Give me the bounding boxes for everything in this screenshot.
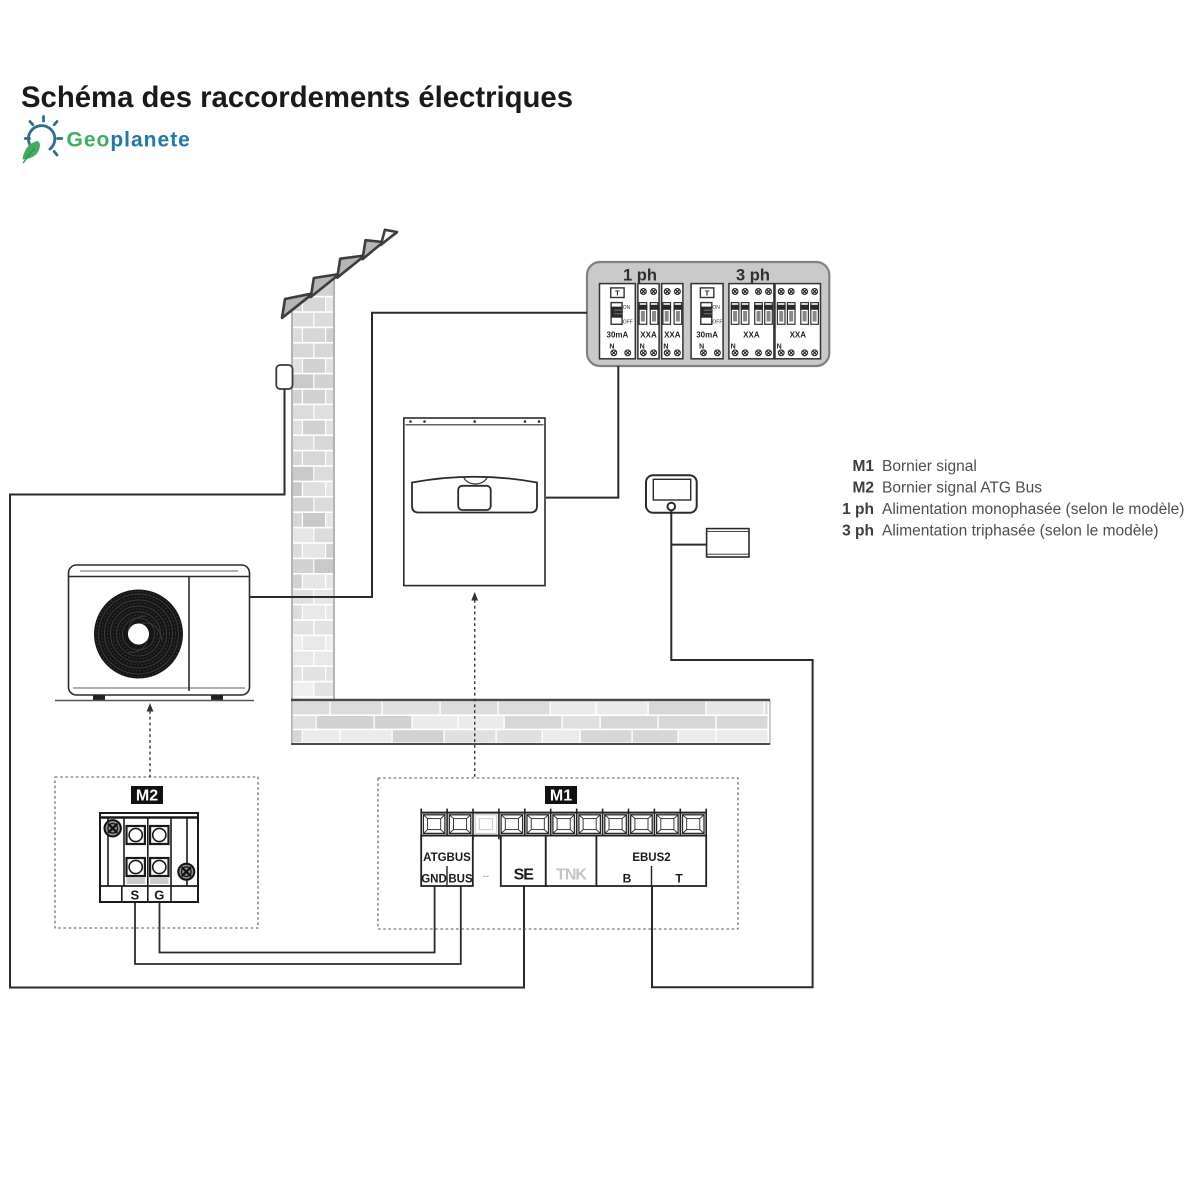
svg-text:ON: ON [712, 305, 720, 311]
svg-text:--: -- [483, 871, 489, 881]
svg-text:Schéma des raccordements élect: Schéma des raccordements électriques [21, 81, 573, 114]
svg-text:SE: SE [514, 867, 535, 884]
svg-text:G: G [154, 888, 164, 903]
svg-text:ATGBUS: ATGBUS [423, 852, 471, 864]
svg-text:1 ph: 1 ph [623, 267, 657, 285]
svg-text:XXA: XXA [743, 331, 760, 340]
svg-text:ON: ON [623, 305, 631, 311]
svg-text:Bornier signal: Bornier signal [882, 458, 977, 475]
svg-text:TNK: TNK [556, 867, 587, 884]
svg-text:GND: GND [421, 874, 447, 886]
svg-text:M2: M2 [852, 480, 874, 497]
svg-text:T: T [705, 289, 710, 298]
svg-text:30mA: 30mA [696, 331, 718, 340]
svg-text:30mA: 30mA [607, 331, 629, 340]
svg-text:M2: M2 [136, 788, 158, 805]
svg-text:EBUS2: EBUS2 [632, 852, 670, 864]
svg-text:3 ph: 3 ph [736, 267, 770, 285]
svg-text:XXA: XXA [790, 331, 807, 340]
svg-text:Alimentation monophasée (selon: Alimentation monophasée (selon le modèle… [882, 501, 1184, 518]
svg-text:B: B [623, 872, 632, 886]
svg-text:BUS: BUS [448, 874, 473, 886]
svg-text:OFF: OFF [712, 319, 722, 325]
svg-text:Alimentation triphasée (selon: Alimentation triphasée (selon le modèle) [882, 523, 1159, 540]
svg-text:Geoplanete: Geoplanete [67, 129, 191, 152]
svg-text:M1: M1 [550, 788, 572, 805]
svg-text:S: S [130, 888, 139, 903]
svg-text:T: T [675, 872, 683, 886]
svg-text:OFF: OFF [623, 319, 633, 325]
svg-text:M1: M1 [852, 458, 874, 475]
svg-text:T: T [615, 289, 620, 298]
svg-text:XXA: XXA [664, 331, 681, 340]
svg-text:1 ph: 1 ph [842, 501, 874, 518]
svg-text:3 ph: 3 ph [842, 523, 874, 540]
svg-text:XXA: XXA [640, 331, 657, 340]
svg-text:Bornier signal ATG Bus: Bornier signal ATG Bus [882, 480, 1042, 497]
